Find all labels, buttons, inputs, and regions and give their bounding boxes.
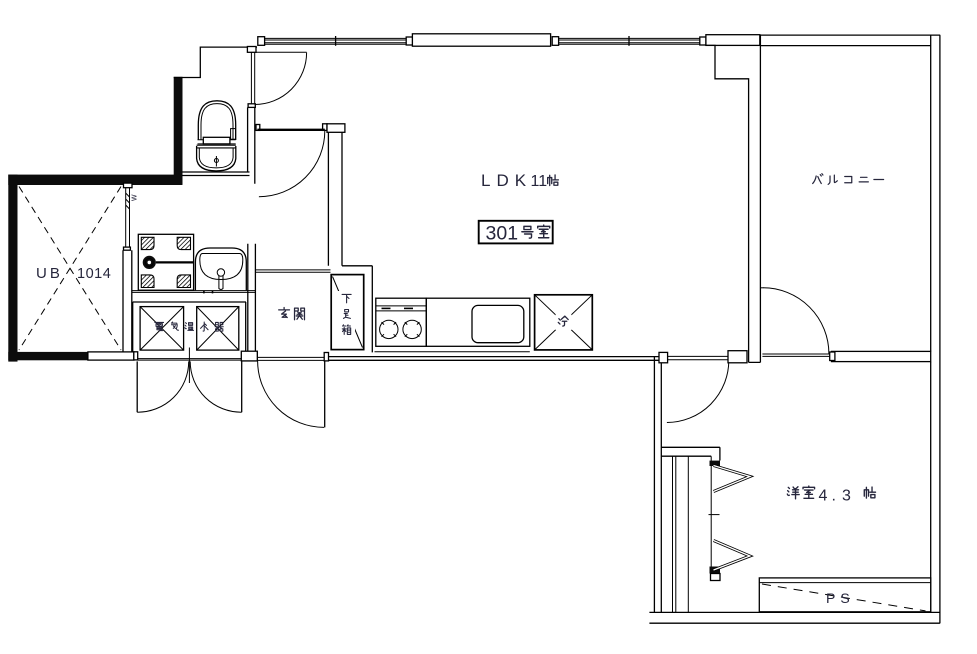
svg-text:PS: PS bbox=[826, 590, 855, 606]
svg-text:.: . bbox=[832, 488, 836, 505]
svg-text:301: 301 bbox=[486, 223, 519, 245]
svg-text:4: 4 bbox=[819, 488, 828, 505]
svg-text:UB: UB bbox=[36, 265, 63, 282]
svg-text:11: 11 bbox=[531, 173, 548, 190]
svg-text:3: 3 bbox=[842, 488, 851, 505]
svg-text:1014: 1014 bbox=[77, 266, 111, 282]
svg-text:w: w bbox=[129, 194, 139, 202]
svg-text:LDK: LDK bbox=[481, 171, 532, 190]
